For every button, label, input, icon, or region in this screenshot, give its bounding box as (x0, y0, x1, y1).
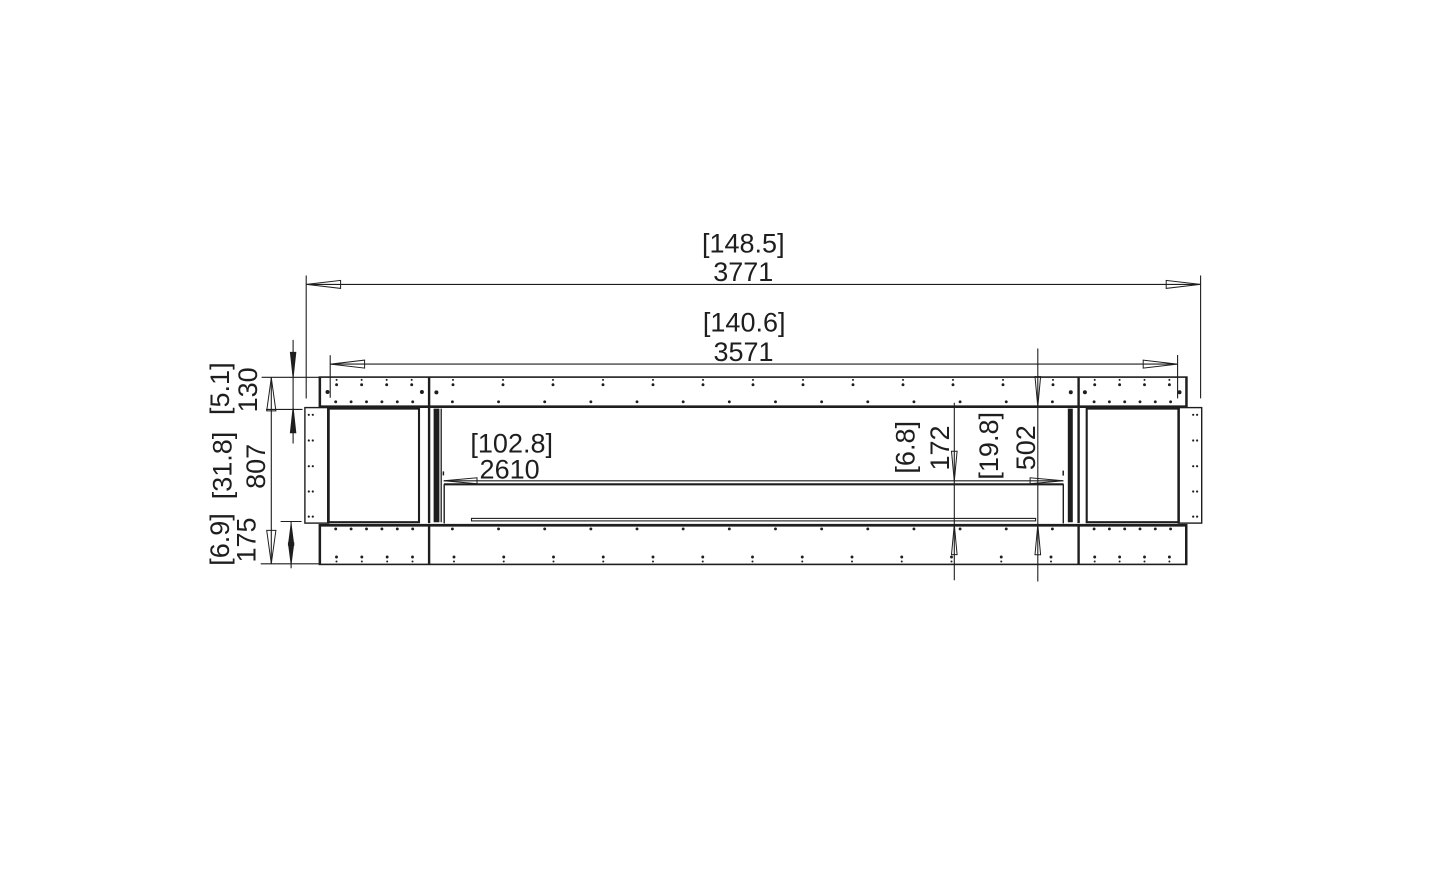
svg-text:[19.8]: [19.8] (974, 412, 1004, 480)
svg-text:3571: 3571 (713, 337, 773, 367)
svg-text:[6.8]: [6.8] (890, 421, 920, 474)
svg-text:175: 175 (231, 517, 261, 562)
svg-text:502: 502 (1011, 425, 1041, 470)
svg-text:[5.1]: [5.1] (205, 362, 235, 415)
svg-text:2610: 2610 (480, 455, 540, 485)
svg-text:[140.6]: [140.6] (703, 307, 786, 337)
svg-text:[31.8]: [31.8] (208, 432, 238, 500)
svg-text:3771: 3771 (713, 257, 773, 287)
svg-text:172: 172 (925, 425, 955, 470)
svg-text:807: 807 (241, 444, 271, 489)
svg-text:130: 130 (233, 367, 263, 412)
svg-text:[148.5]: [148.5] (702, 228, 785, 258)
